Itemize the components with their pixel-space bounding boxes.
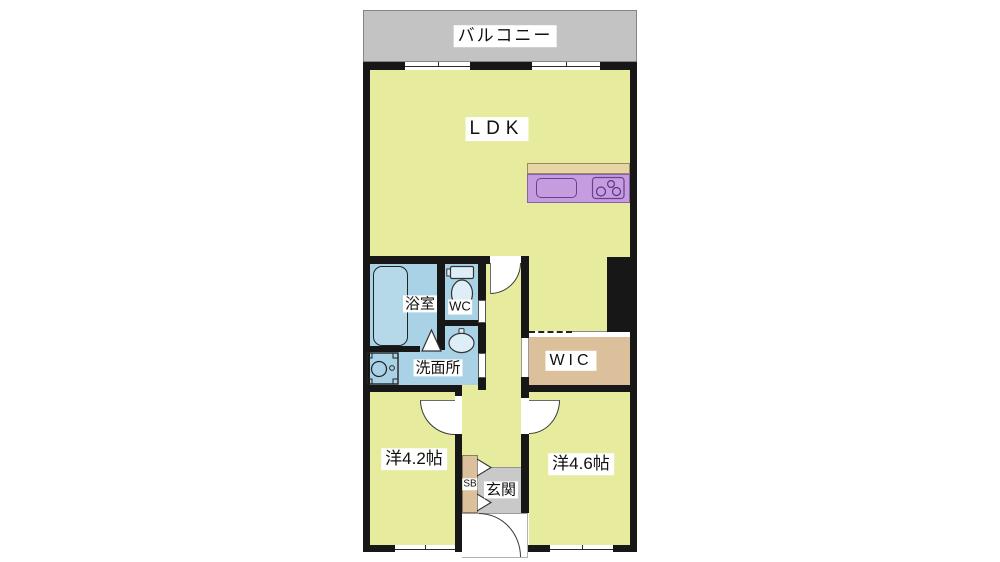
floor-plan-canvas: バルコニー LDK 浴室 WC 洗面所 WIC 洋4.2帖 洋4.6帖 SB 玄… <box>0 0 1000 562</box>
wall-right <box>630 62 637 552</box>
ldk-nook <box>529 259 607 331</box>
shoe-box-label: SB <box>462 478 477 490</box>
washbasin-icon <box>446 328 477 354</box>
wall-left <box>363 62 370 552</box>
window-balcony-left <box>405 62 470 70</box>
western-room-1-label: 洋4.2帖 <box>381 448 447 470</box>
wall-wic-south <box>521 385 637 392</box>
entrance-label: 玄関 <box>484 481 518 498</box>
kitchen-countertop <box>527 163 630 174</box>
pipe-shaft <box>607 257 630 332</box>
wic-opening <box>521 338 529 377</box>
bathroom-folding-door-icon <box>420 328 443 352</box>
wall-ldk-south <box>363 256 490 264</box>
kitchen-sink-icon <box>536 178 577 198</box>
western-room-2-label: 洋4.6帖 <box>548 453 614 475</box>
bathroom-label: 浴室 <box>403 295 437 312</box>
washing-machine-icon <box>366 352 399 385</box>
wic-divider-line <box>572 331 607 337</box>
wic-label: WIC <box>545 351 596 371</box>
room2-door-opening <box>521 398 529 434</box>
ldk-label: LDK <box>466 117 529 141</box>
wall-bath-wc-divider <box>437 262 445 326</box>
room1-door-opening <box>455 396 462 434</box>
stove-icon <box>591 176 626 200</box>
washroom-door <box>478 353 486 378</box>
window-room2 <box>550 545 613 552</box>
washroom-label: 洗面所 <box>413 359 462 376</box>
window-balcony-right <box>532 62 600 70</box>
wic-divider-dashed <box>529 331 572 337</box>
toilet-label: WC <box>448 300 472 315</box>
balcony-label: バルコニー <box>454 25 557 47</box>
window-room1 <box>395 545 455 552</box>
wc-door <box>478 300 486 323</box>
wall-washroom-south <box>363 385 455 392</box>
